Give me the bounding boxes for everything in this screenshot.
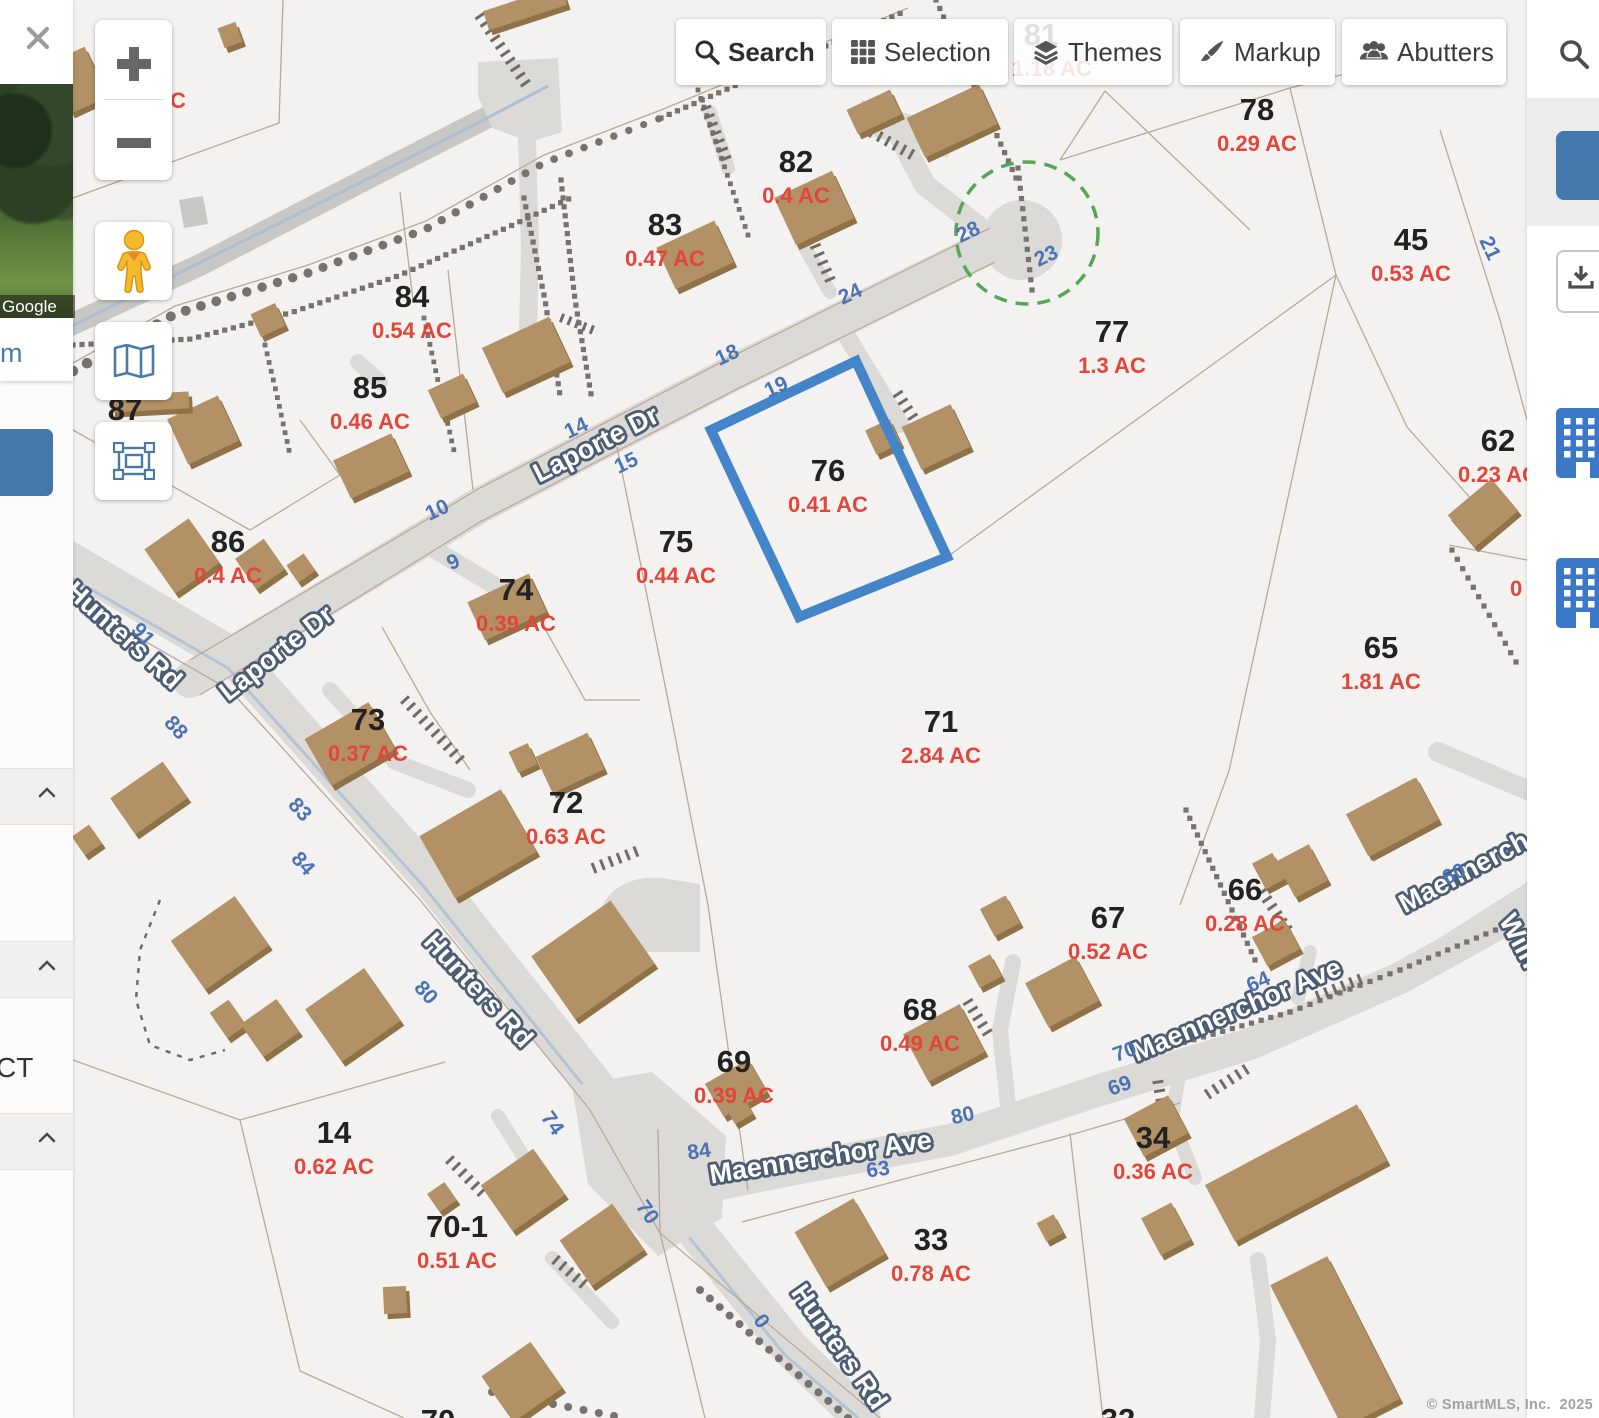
svg-text:65: 65 (1364, 630, 1398, 665)
svg-text:70-1: 70-1 (426, 1209, 488, 1244)
svg-text:0.46 AC: 0.46 AC (330, 409, 410, 434)
svg-text:0.78 AC: 0.78 AC (891, 1261, 971, 1286)
svg-text:0.4 AC: 0.4 AC (762, 183, 830, 208)
svg-text:86: 86 (211, 524, 245, 559)
svg-text:74: 74 (499, 572, 534, 607)
svg-text:32: 32 (1101, 1402, 1135, 1418)
svg-text:1.3 AC: 1.3 AC (1078, 353, 1146, 378)
svg-text:66: 66 (1228, 872, 1262, 907)
svg-text:0.44 AC: 0.44 AC (636, 563, 716, 588)
svg-text:84: 84 (395, 279, 430, 314)
svg-text:83: 83 (648, 207, 682, 242)
svg-text:76: 76 (811, 453, 845, 488)
svg-text:73: 73 (351, 702, 385, 737)
svg-text:70: 70 (421, 1403, 455, 1418)
svg-text:69: 69 (717, 1044, 751, 1079)
svg-text:0.41 AC: 0.41 AC (788, 492, 868, 517)
svg-text:68: 68 (903, 992, 937, 1027)
svg-text:0.47 AC: 0.47 AC (625, 246, 705, 271)
svg-text:85: 85 (353, 370, 387, 405)
svg-text:75: 75 (659, 524, 693, 559)
svg-text:45: 45 (1394, 222, 1428, 257)
svg-text:0.62 AC: 0.62 AC (294, 1154, 374, 1179)
svg-text:0.51 AC: 0.51 AC (417, 1248, 497, 1273)
svg-text:78: 78 (1240, 92, 1274, 127)
svg-text:62: 62 (1481, 423, 1515, 458)
svg-text:0.36 AC: 0.36 AC (1113, 1159, 1193, 1184)
svg-text:0.54 AC: 0.54 AC (372, 318, 452, 343)
svg-text:67: 67 (1091, 900, 1125, 935)
svg-text:84: 84 (686, 1139, 713, 1165)
svg-text:0.39 AC: 0.39 AC (476, 611, 556, 636)
svg-text:C: C (170, 88, 186, 113)
svg-text:80: 80 (949, 1102, 977, 1129)
svg-text:0.52 AC: 0.52 AC (1068, 939, 1148, 964)
svg-text:71: 71 (924, 704, 958, 739)
svg-text:0.63 AC: 0.63 AC (526, 824, 606, 849)
svg-text:63: 63 (865, 1157, 891, 1183)
svg-text:72: 72 (549, 785, 583, 820)
svg-text:0.53 AC: 0.53 AC (1371, 261, 1451, 286)
svg-text:33: 33 (914, 1222, 948, 1257)
svg-text:14: 14 (317, 1115, 352, 1150)
svg-text:0: 0 (1510, 576, 1522, 601)
svg-text:77: 77 (1095, 314, 1129, 349)
svg-text:0.4 AC: 0.4 AC (194, 563, 262, 588)
svg-text:82: 82 (779, 144, 813, 179)
svg-text:2.84 AC: 2.84 AC (901, 743, 981, 768)
svg-text:0.39 AC: 0.39 AC (694, 1083, 774, 1108)
svg-text:1.81 AC: 1.81 AC (1341, 669, 1421, 694)
svg-text:34: 34 (1136, 1120, 1171, 1155)
svg-text:0.29 AC: 0.29 AC (1217, 131, 1297, 156)
svg-text:0.37 AC: 0.37 AC (328, 741, 408, 766)
svg-text:0.49 AC: 0.49 AC (880, 1031, 960, 1056)
svg-text:0.28 AC: 0.28 AC (1205, 911, 1285, 936)
